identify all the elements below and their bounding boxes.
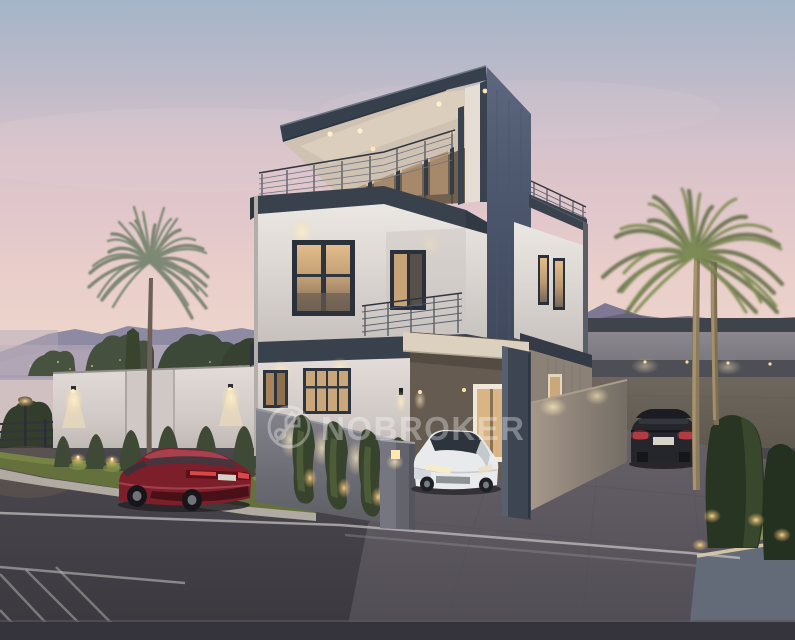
svg-text:NOBROKER: NOBROKER — [321, 410, 526, 447]
